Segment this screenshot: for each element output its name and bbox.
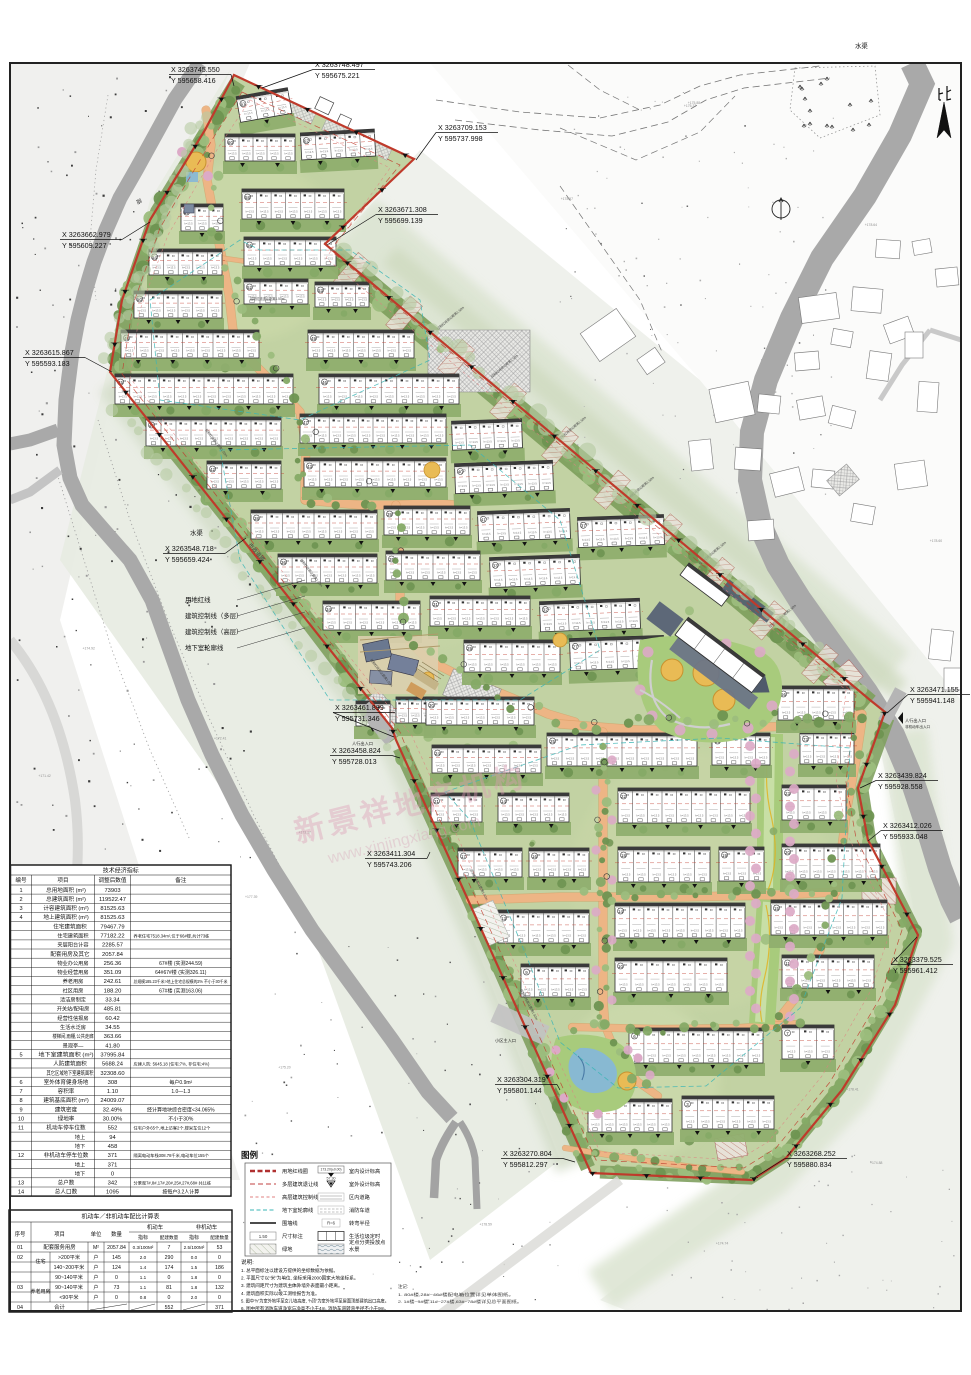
svg-text:h=13.5: h=13.5: [817, 979, 826, 983]
svg-text:X 3263304.319: X 3263304.319: [497, 1075, 546, 1084]
svg-text:43: 43: [307, 464, 312, 469]
svg-text:h=13.5: h=13.5: [699, 873, 708, 877]
svg-text:h=13.5: h=13.5: [296, 295, 305, 299]
svg-text:2057.84: 2057.84: [102, 952, 124, 958]
svg-text:h=13.5: h=13.5: [318, 530, 327, 534]
svg-text:Y 595961.412: Y 595961.412: [893, 966, 938, 975]
svg-text:188.20: 188.20: [104, 988, 122, 994]
svg-text:h=13.5: h=13.5: [365, 530, 374, 534]
svg-text:h=13.5: h=13.5: [167, 309, 176, 313]
svg-text:h=13.5: h=13.5: [710, 814, 719, 818]
svg-text:h=13.5: h=13.5: [430, 716, 439, 720]
svg-text:h=13.5: h=13.5: [338, 574, 347, 578]
svg-text:h=13.5: h=13.5: [563, 868, 572, 872]
svg-text:养老住宅7518.34m²,位于66#楼,共计73栋: 养老住宅7518.34m²,位于66#楼,共计73栋: [134, 933, 210, 940]
svg-text:h=13.5: h=13.5: [601, 620, 610, 624]
svg-text:h=13.5: h=13.5: [459, 484, 468, 488]
svg-text:X 3263439.824: X 3263439.824: [878, 771, 927, 780]
svg-text:h=13.5: h=13.5: [461, 716, 470, 720]
svg-text:h=13.5: h=13.5: [406, 571, 415, 575]
svg-text:h=13.5: h=13.5: [830, 755, 839, 759]
svg-text:用地红线圈: 用地红线圈: [282, 1167, 308, 1175]
svg-text:h=13.5: h=13.5: [813, 870, 822, 874]
svg-text:h=13.5: h=13.5: [482, 532, 491, 536]
svg-text:39: 39: [387, 512, 392, 517]
svg-text:生活垃圾定时: 生活垃圾定时: [349, 1232, 380, 1240]
svg-text:h=13.5: h=13.5: [416, 526, 425, 530]
svg-text:夹层阳台计容: 夹层阳台计容: [57, 941, 88, 949]
svg-text:h=13.5: h=13.5: [513, 531, 522, 535]
svg-text:Y 595737.998: Y 595737.998: [438, 134, 483, 143]
svg-text:h=13.5: h=13.5: [377, 434, 386, 438]
svg-text:h=13.5: h=13.5: [579, 988, 588, 992]
svg-text:h=13.5: h=13.5: [275, 210, 284, 214]
svg-text:h=13.5: h=13.5: [333, 210, 342, 214]
svg-text:h=13.5: h=13.5: [156, 349, 165, 353]
svg-text:h=13.5: h=13.5: [828, 711, 837, 715]
svg-text:X 3263411.304: X 3263411.304: [367, 849, 415, 858]
svg-text:h=13.5: h=13.5: [653, 873, 662, 877]
svg-text:多层建筑退让线: 多层建筑退让线: [282, 1180, 318, 1188]
svg-text:64#67#楼 (实测326.11): 64#67#楼 (实测326.11): [155, 969, 207, 976]
svg-text:Y 595731.346: Y 595731.346: [335, 714, 380, 723]
svg-text:h=13.5: h=13.5: [695, 814, 704, 818]
svg-text:h=13.5: h=13.5: [320, 149, 329, 153]
svg-text:15: 15: [774, 906, 779, 911]
svg-text:h=13.5: h=13.5: [422, 571, 431, 575]
svg-text:人行出入口: 人行出入口: [905, 717, 926, 724]
svg-text:h=13.5: h=13.5: [356, 478, 365, 482]
svg-text:h=13.5: h=13.5: [818, 811, 827, 815]
svg-text:145: 145: [112, 1255, 121, 1261]
svg-text:h=13.5: h=13.5: [434, 478, 443, 482]
svg-text:371: 371: [108, 1153, 118, 1159]
svg-text:h=13.5: h=13.5: [318, 298, 327, 302]
svg-text:41.80: 41.80: [105, 1043, 120, 1049]
svg-text:h=13.5: h=13.5: [354, 395, 363, 399]
svg-text:173.20(±0.00): 173.20(±0.00): [320, 1168, 341, 1172]
svg-text:h=13.5: h=13.5: [752, 1054, 761, 1058]
svg-text:Y 595743.206: Y 595743.206: [367, 860, 412, 869]
svg-text:h=13.5: h=13.5: [318, 434, 327, 438]
svg-text:h=13.5: h=13.5: [401, 395, 410, 399]
svg-text:363.66: 363.66: [104, 1034, 122, 1040]
svg-text:清洁房制定: 清洁房制定: [60, 996, 86, 1004]
svg-text:2. 平面尺寸以“米”为单位, 坐标采用2000国家大地坐标: 2. 平面尺寸以“米”为单位, 坐标采用2000国家大地坐标系。: [241, 1275, 358, 1282]
svg-text:+171.42: +171.42: [38, 774, 50, 778]
svg-text:h=13.5: h=13.5: [340, 478, 349, 482]
svg-text:h=13.5: h=13.5: [517, 934, 526, 938]
svg-text:h=13.5: h=13.5: [847, 979, 856, 983]
svg-text:1.8: 1.8: [191, 1275, 198, 1280]
svg-text:h=13.5: h=13.5: [437, 571, 446, 575]
svg-text:X 3263662.979: X 3263662.979: [62, 230, 111, 239]
svg-text:23: 23: [785, 791, 790, 796]
svg-text:地下室轮廓线: 地下室轮廓线: [282, 1206, 313, 1214]
svg-text:地上建筑面积 (m²): 地上建筑面积 (m²): [43, 913, 89, 921]
svg-text:h=13.5: h=13.5: [271, 530, 280, 534]
svg-text:建筑基底面积 (m²): 建筑基底面积 (m²): [43, 1096, 89, 1104]
svg-text:h=13.5: h=13.5: [411, 714, 420, 718]
svg-text:5: 5: [19, 1052, 22, 1058]
svg-text:9: 9: [19, 1107, 22, 1113]
svg-text:1. 80#楼,28#~46#楼配电箱位置详见单体图纸。: 1. 80#楼,28#~46#楼配电箱位置详见单体图纸。: [398, 1291, 514, 1297]
svg-text:h=13.5: h=13.5: [468, 663, 477, 667]
svg-text:32: 32: [543, 607, 549, 612]
svg-text:h=13.5: h=13.5: [467, 764, 476, 768]
svg-text:h=13.5: h=13.5: [406, 434, 415, 438]
svg-text:图例: 图例: [241, 1150, 259, 1160]
svg-text:数量: 数量: [111, 1230, 122, 1238]
svg-text:h=13.5: h=13.5: [433, 617, 442, 621]
svg-text:>200平米: >200平米: [58, 1253, 81, 1261]
svg-text:60.42: 60.42: [105, 1016, 120, 1022]
svg-text:X 3263748.497: X 3263748.497: [315, 60, 364, 69]
svg-text:住宅建筑面积: 住宅建筑面积: [57, 932, 88, 940]
svg-text:24: 24: [435, 751, 440, 756]
svg-text:h=13.5: h=13.5: [532, 663, 541, 667]
svg-text:h=13.5: h=13.5: [530, 813, 539, 817]
svg-text:地下: 地下: [75, 1169, 85, 1177]
svg-text:h=13.5: h=13.5: [683, 983, 692, 987]
svg-text:h=13.5: h=13.5: [342, 349, 351, 353]
svg-text:指标: 指标: [138, 1234, 148, 1241]
svg-text:h=13.5: h=13.5: [606, 660, 615, 664]
svg-text:0: 0: [168, 1295, 171, 1301]
svg-text:h=13.5: h=13.5: [558, 813, 567, 817]
svg-text:h=13.5: h=13.5: [797, 711, 806, 715]
svg-text:h=13.5: h=13.5: [578, 868, 587, 872]
svg-text:36: 36: [281, 560, 286, 565]
svg-text:转弯半径: 转弯半径: [349, 1219, 370, 1227]
svg-text:1.10: 1.10: [107, 1089, 118, 1095]
svg-text:0: 0: [115, 1295, 118, 1301]
svg-text:1.8: 1.8: [191, 1285, 198, 1290]
svg-text:485.81: 485.81: [104, 1007, 122, 1013]
svg-text:h=13.5: h=13.5: [691, 929, 700, 933]
svg-text:容积率: 容积率: [58, 1087, 75, 1095]
svg-text:67#楼 (实测244.59): 67#楼 (实测244.59): [159, 960, 203, 967]
svg-text:h=13.5: h=13.5: [523, 716, 532, 720]
svg-text:h=13.5: h=13.5: [621, 659, 630, 663]
svg-text:2: 2: [19, 897, 22, 903]
svg-text:h=13.5: h=13.5: [473, 483, 482, 487]
svg-text:h=13.5: h=13.5: [223, 395, 232, 399]
svg-text:342: 342: [108, 1181, 118, 1187]
svg-text:X 3263458.824: X 3263458.824: [332, 746, 381, 755]
svg-text:h=13.5: h=13.5: [260, 210, 269, 214]
svg-text:h=13.5: h=13.5: [255, 437, 264, 441]
svg-text:项目: 项目: [57, 877, 68, 884]
svg-text:h=13.5: h=13.5: [509, 577, 518, 581]
svg-text:34: 34: [326, 607, 331, 612]
svg-text:建筑控制线（多层）: 建筑控制线（多层）: [185, 611, 243, 620]
svg-text:<90平米: <90平米: [59, 1293, 79, 1301]
svg-text:h=13.5: h=13.5: [717, 1120, 726, 1124]
svg-text:h=13.5: h=13.5: [863, 979, 872, 983]
svg-text:0: 0: [218, 1255, 221, 1261]
svg-text:h=13.5: h=13.5: [304, 210, 313, 214]
svg-text:5688.24: 5688.24: [102, 1062, 124, 1068]
svg-text:h=13.5: h=13.5: [248, 257, 257, 261]
svg-text:13: 13: [18, 1181, 24, 1187]
svg-text:h=13.5: h=13.5: [516, 663, 525, 667]
svg-text:水景: 水景: [349, 1245, 359, 1253]
svg-text:小区主入口: 小区主入口: [495, 1037, 516, 1044]
svg-text:1.5: 1.5: [191, 1265, 198, 1270]
svg-text:X 3263671.308: X 3263671.308: [378, 205, 427, 214]
svg-text:R=6: R=6: [327, 1221, 335, 1226]
svg-text:2057.84: 2057.84: [107, 1245, 126, 1251]
svg-text:室外体育健身场地: 室外体育健身场地: [44, 1078, 89, 1086]
svg-text:h=13.5: h=13.5: [569, 575, 578, 579]
svg-text:h=13.5: h=13.5: [619, 983, 628, 987]
svg-text:h=13.5: h=13.5: [453, 571, 462, 575]
svg-text:h=13.5: h=13.5: [294, 257, 303, 261]
svg-text:4. 建筑面积实际以竣工测绘报告为准。: 4. 建筑面积实际以竣工测绘报告为准。: [241, 1290, 320, 1297]
svg-text:79467.79: 79467.79: [100, 924, 124, 930]
svg-text:X 3263745.550: X 3263745.550: [171, 65, 220, 74]
svg-text:01: 01: [17, 1245, 23, 1251]
svg-text:+175.20: +175.20: [278, 1066, 290, 1070]
svg-text:h=13.5: h=13.5: [596, 537, 605, 541]
svg-text:h=13.5: h=13.5: [705, 929, 714, 933]
svg-text:地下室建筑面积 (m²): 地下室建筑面积 (m²): [39, 1050, 94, 1058]
svg-text:h=13.5: h=13.5: [186, 349, 195, 353]
svg-text:h=13.5: h=13.5: [578, 934, 587, 938]
svg-text:h=13.5: h=13.5: [539, 576, 548, 580]
svg-text:h=13.5: h=13.5: [246, 210, 255, 214]
svg-text:绿地率: 绿地率: [58, 1115, 75, 1123]
svg-text:10: 10: [18, 1117, 24, 1123]
svg-text:7: 7: [19, 1089, 22, 1095]
svg-text:h=13.5: h=13.5: [452, 764, 461, 768]
svg-text:h=13.5: h=13.5: [720, 929, 729, 933]
svg-text:h=13.5: h=13.5: [715, 983, 724, 987]
svg-text:总用地面积 (m²): 总用地面积 (m²): [46, 886, 86, 894]
svg-text:定点分类投放点: 定点分类投放点: [349, 1238, 385, 1246]
svg-text:h=13.5: h=13.5: [484, 439, 493, 443]
svg-text:33: 33: [493, 563, 499, 568]
svg-text:h=13.5: h=13.5: [747, 1120, 756, 1124]
svg-text:h=13.5: h=13.5: [178, 395, 187, 399]
svg-text:h=13.5: h=13.5: [661, 1123, 670, 1127]
svg-text:h=13.5: h=13.5: [565, 988, 574, 992]
svg-text:h=13.5: h=13.5: [263, 257, 272, 261]
svg-text:h=13.5: h=13.5: [563, 934, 572, 938]
svg-text:建筑密度: 建筑密度: [55, 1105, 78, 1113]
svg-text:单位: 单位: [91, 1230, 102, 1238]
svg-text:h=13.5: h=13.5: [476, 617, 485, 621]
svg-text:h=13.5: h=13.5: [671, 757, 680, 761]
svg-text:h=13.5: h=13.5: [333, 434, 342, 438]
svg-text:h=13.5: h=13.5: [448, 395, 457, 399]
svg-text:0: 0: [111, 1171, 114, 1177]
svg-text:户: 户: [93, 1283, 98, 1291]
svg-text:h=13.5: h=13.5: [516, 813, 525, 817]
svg-text:楼梯间,雨棚,公共走廊: 楼梯间,雨棚,公共走廊: [53, 1032, 94, 1040]
svg-text:Y 595728.013: Y 595728.013: [332, 757, 377, 766]
svg-text:h=13.5: h=13.5: [419, 478, 428, 482]
svg-text:h=13.5: h=13.5: [352, 574, 361, 578]
svg-text:1.1: 1.1: [140, 1275, 147, 1280]
svg-text:h=13.5: h=13.5: [211, 309, 220, 313]
svg-text:分景观7#,8#,17#,20#,25#,27#,68# 共: 分景观7#,8#,17#,20#,25#,27#,68# 共11栋: [134, 1180, 212, 1187]
svg-text:h=13.5: h=13.5: [723, 872, 732, 876]
svg-text:非机动车出入口: 非机动车出入口: [905, 724, 931, 729]
svg-text:h=13.5: h=13.5: [408, 621, 417, 625]
svg-text:h=13.5: h=13.5: [305, 150, 314, 154]
svg-text:32308.60: 32308.60: [100, 1071, 124, 1077]
svg-text:h=13.5: h=13.5: [335, 148, 344, 152]
svg-text:h=13.5: h=13.5: [289, 210, 298, 214]
svg-text:h=13.5: h=13.5: [279, 257, 288, 261]
svg-text:h=13.5: h=13.5: [287, 530, 296, 534]
svg-text:h=13.5: h=13.5: [163, 395, 172, 399]
svg-text:h=13.5: h=13.5: [388, 526, 397, 530]
svg-text:0: 0: [218, 1295, 221, 1301]
svg-text:11: 11: [18, 1126, 24, 1132]
svg-text:h=13.5: h=13.5: [459, 526, 468, 530]
svg-text:h=13.5: h=13.5: [248, 349, 257, 353]
svg-text:31: 31: [433, 602, 438, 607]
svg-text:h=13.5: h=13.5: [134, 395, 143, 399]
svg-text:h=13.5: h=13.5: [876, 926, 885, 930]
svg-text:34.55: 34.55: [105, 1025, 120, 1031]
svg-text:养老用房: 养老用房: [63, 977, 84, 985]
svg-text:h=13.5: h=13.5: [478, 868, 487, 872]
svg-text:h=13.5: h=13.5: [270, 437, 279, 441]
svg-text:8: 8: [19, 1098, 22, 1104]
svg-text:81: 81: [166, 1285, 172, 1291]
svg-text:h=13.5: h=13.5: [676, 929, 685, 933]
svg-text:h=13.5: h=13.5: [255, 530, 264, 534]
svg-text:h=13.5: h=13.5: [153, 266, 162, 270]
svg-text:M²: M²: [93, 1245, 99, 1251]
svg-text:h=13.5: h=13.5: [498, 439, 507, 443]
svg-text:景观亭—: 景观亭—: [63, 1041, 85, 1049]
svg-text:371: 371: [108, 1162, 118, 1168]
svg-text:h=13.5: h=13.5: [487, 483, 496, 487]
svg-text:h=13.5: h=13.5: [662, 929, 671, 933]
svg-text:h=13.5: h=13.5: [647, 1123, 656, 1127]
svg-text:38: 38: [254, 516, 259, 521]
svg-text:住宅: 住宅: [35, 1258, 45, 1265]
svg-text:h=13.5: h=13.5: [619, 1123, 628, 1127]
svg-text:h=13.5: h=13.5: [453, 813, 462, 817]
svg-text:h=13.5: h=13.5: [716, 756, 725, 760]
svg-text:h=13.5: h=13.5: [626, 757, 635, 761]
svg-text:h=13.5: h=13.5: [641, 757, 650, 761]
svg-text:h=13.5: h=13.5: [388, 349, 397, 353]
svg-text:h=13.5: h=13.5: [362, 434, 371, 438]
svg-text:Y 595609.227: Y 595609.227: [62, 241, 107, 250]
svg-text:h=13.5: h=13.5: [323, 395, 332, 399]
svg-text:14: 14: [618, 909, 623, 914]
svg-text:每户0.9m²: 每户0.9m²: [169, 1079, 192, 1086]
svg-text:h=13.5: h=13.5: [817, 755, 826, 759]
svg-text:h=13.5: h=13.5: [648, 1054, 657, 1058]
svg-text:h=13.5: h=13.5: [180, 437, 189, 441]
svg-text:h=13.5: h=13.5: [532, 934, 541, 938]
svg-text:物业经营用房: 物业经营用房: [57, 968, 88, 976]
svg-text:h=13.5: h=13.5: [182, 309, 191, 313]
svg-text:h=13.5: h=13.5: [324, 478, 333, 482]
svg-text:h=13.5: h=13.5: [633, 1123, 642, 1127]
svg-text:1.4: 1.4: [140, 1265, 147, 1270]
svg-text:Y 595801.144: Y 595801.144: [497, 1086, 542, 1095]
svg-text:62: 62: [304, 138, 310, 143]
svg-text:h=13.5: h=13.5: [804, 1050, 813, 1054]
svg-text:区内道路: 区内道路: [349, 1193, 371, 1201]
svg-text:h=13.5: h=13.5: [701, 1120, 710, 1124]
svg-text:h=13.5: h=13.5: [370, 395, 379, 399]
svg-text:h=13.5: h=13.5: [267, 395, 276, 399]
svg-text:h=13.5: h=13.5: [152, 309, 161, 313]
svg-text:Y 595928.558: Y 595928.558: [878, 782, 923, 791]
svg-text:X 3263461.899: X 3263461.899: [335, 703, 384, 712]
svg-text:技术经济指标: 技术经济指标: [103, 866, 139, 874]
svg-text:备注: 备注: [175, 876, 187, 884]
svg-text:h=13.5: h=13.5: [492, 716, 501, 720]
svg-text:X 3263379.525: X 3263379.525: [893, 955, 942, 964]
svg-text:49: 49: [311, 336, 316, 341]
svg-text:h=13.5: h=13.5: [208, 395, 217, 399]
svg-text:h=13.5: h=13.5: [385, 395, 394, 399]
svg-text:66: 66: [781, 692, 786, 697]
svg-text:22: 22: [621, 794, 626, 799]
svg-text:h=13.5: h=13.5: [462, 617, 471, 621]
svg-text:90~140平米: 90~140平米: [55, 1283, 84, 1291]
svg-text:h=13.5: h=13.5: [327, 349, 336, 353]
svg-text:h=13.5: h=13.5: [544, 813, 553, 817]
svg-text:h=13.5: h=13.5: [530, 764, 539, 768]
svg-text:围墙线: 围墙线: [282, 1219, 298, 1227]
svg-text:h=13.5: h=13.5: [376, 621, 385, 625]
svg-text:h=13.5: h=13.5: [822, 1050, 831, 1054]
svg-text:h=13.5: h=13.5: [619, 929, 628, 933]
svg-text:h=13.5: h=13.5: [491, 617, 500, 621]
svg-text:h=13.5: h=13.5: [270, 152, 279, 156]
svg-text:计容建筑面积 (m²): 计容建筑面积 (m²): [43, 904, 89, 912]
svg-text:h=13.5: h=13.5: [667, 983, 676, 987]
svg-text:h=13.5: h=13.5: [653, 535, 662, 539]
svg-text:X 3263471.155: X 3263471.155: [910, 685, 959, 694]
svg-text:57.30: 57.30: [327, 1177, 336, 1181]
svg-text:h=13.5: h=13.5: [629, 619, 638, 623]
svg-text:h=13.5: h=13.5: [802, 811, 811, 815]
svg-text:12: 12: [18, 1153, 24, 1159]
svg-text:h=13.5: h=13.5: [622, 814, 631, 818]
svg-text:Y 595812.297: Y 595812.297: [503, 1160, 548, 1169]
svg-text:h=13.5: h=13.5: [431, 526, 440, 530]
svg-text:h=13.5: h=13.5: [501, 813, 510, 817]
svg-text:1.0—1.3: 1.0—1.3: [171, 1089, 190, 1095]
svg-text:256.36: 256.36: [104, 961, 122, 967]
svg-text:h=13.5: h=13.5: [494, 578, 503, 582]
svg-text:非机动车停车位数: 非机动车停车位数: [44, 1151, 89, 1159]
svg-text:h=13.5: h=13.5: [524, 577, 533, 581]
svg-text:1: 1: [19, 888, 22, 894]
svg-text:0: 0: [218, 1275, 221, 1281]
svg-text:h=13.5: h=13.5: [399, 714, 408, 718]
svg-text:58: 58: [245, 195, 250, 200]
svg-text:户: 户: [93, 1253, 98, 1261]
svg-text:地上: 地上: [75, 1160, 85, 1168]
svg-text:0: 0: [168, 1275, 171, 1281]
svg-text:h=13.5: h=13.5: [782, 711, 791, 715]
svg-text:h=13.5: h=13.5: [240, 437, 249, 441]
